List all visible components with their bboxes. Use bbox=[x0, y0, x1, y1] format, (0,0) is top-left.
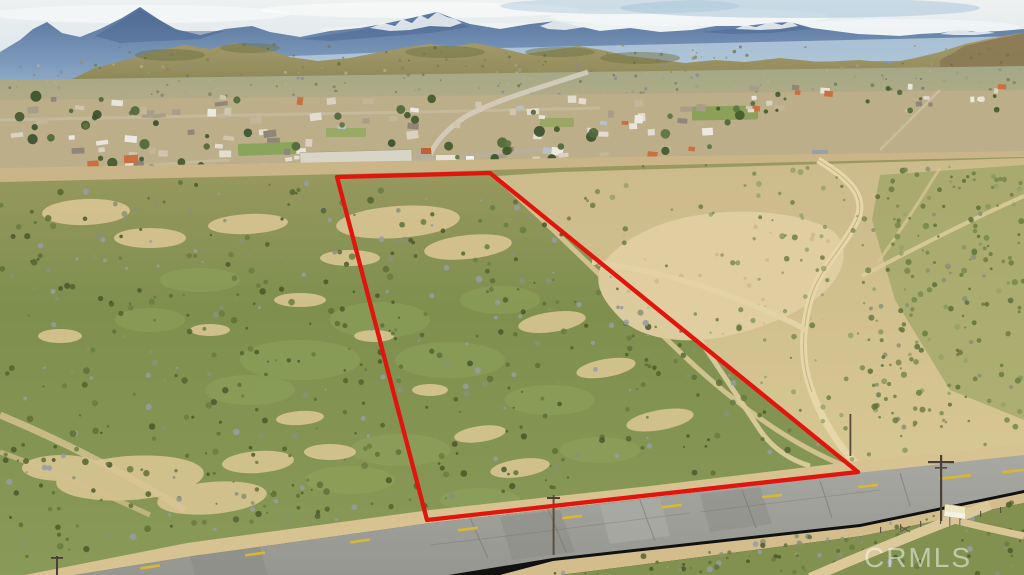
watermark: CRMLS bbox=[864, 542, 972, 573]
utility-pole-corner bbox=[850, 414, 852, 456]
aerial-photo: CRMLS bbox=[0, 0, 1024, 575]
scene-canvas: CRMLS bbox=[0, 0, 1024, 575]
